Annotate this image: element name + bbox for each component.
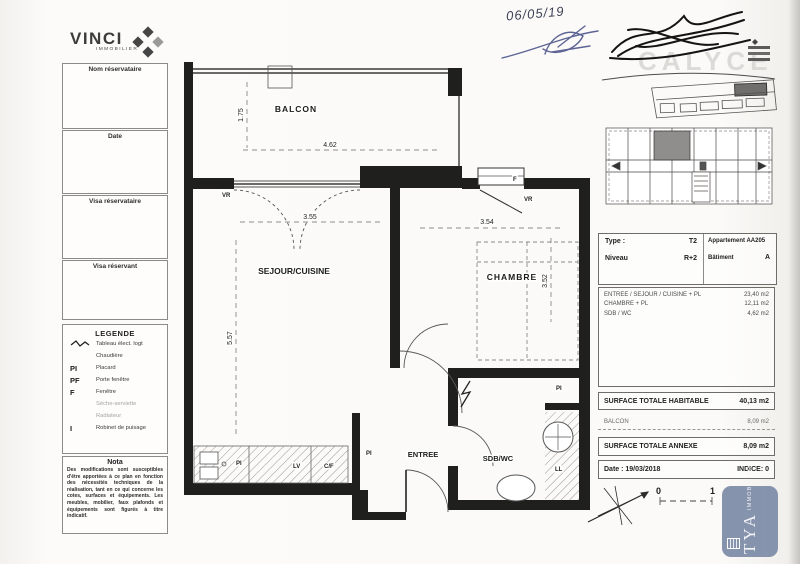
legend-item: PI Placard xyxy=(63,362,167,374)
compass-north xyxy=(588,486,648,525)
svg-text:1: 1 xyxy=(710,486,715,496)
vinci-logo: VINCI IMMOBILIER xyxy=(70,30,166,60)
legend-label: Chaudière xyxy=(96,353,123,359)
legend-title: LEGENDE xyxy=(63,329,167,338)
batiment-value: A xyxy=(765,254,770,261)
signature-black xyxy=(610,12,750,59)
room-area-row: ENTREE / SEJOUR / CUISINE + PL23,40 m2 xyxy=(604,291,769,300)
sink-bowl xyxy=(200,452,218,464)
dim-sejour-w: 3.55 xyxy=(303,214,317,221)
total-habitable-box: SURFACE TOTALE HABITABLE 40,13 m2 xyxy=(598,392,775,410)
label-lv: LV xyxy=(293,464,300,470)
nota-box: Nota Des modifications sont susceptibles… xyxy=(62,456,168,534)
field-visa-reservataire: Visa réservataire xyxy=(62,195,168,259)
room-label-sejour: SEJOUR/CUISINE xyxy=(258,266,330,276)
room-area-row: CHAMBRE + PL12,11 m2 xyxy=(604,300,769,309)
floor-key-plan xyxy=(606,128,772,204)
apartment-plan: BALCON SEJOUR/CUISINE CHAMBRE ENTREE SDB… xyxy=(184,62,590,520)
total-annexe-value: 8,09 m2 xyxy=(743,443,769,450)
nota-title: Nota xyxy=(63,459,167,466)
legend-item: I Robinet de puisage xyxy=(63,422,167,434)
field-label: Date xyxy=(63,131,167,140)
legend-label: Fenêtre xyxy=(96,389,116,395)
vinci-logo-sub: IMMOBILIER xyxy=(96,47,166,52)
label-pi-entree: PI xyxy=(366,451,372,457)
door-arcs xyxy=(400,324,493,512)
room-area-row: SDB / WC4,62 m2 xyxy=(604,310,769,319)
room-label-chambre: CHAMBRE xyxy=(487,272,537,282)
legend-abbr: I xyxy=(70,424,96,433)
label-f-window: F xyxy=(513,177,517,183)
niveau-label: Niveau xyxy=(605,255,628,262)
plan-date: Date : 19/03/2018 xyxy=(604,466,660,473)
legend-item: Sèche-serviette xyxy=(63,398,167,410)
dim-balcon-w: 4.62 xyxy=(323,142,337,149)
type-value: T2 xyxy=(689,238,697,245)
citya-name: CITYA xyxy=(740,512,760,564)
room-label-balcon: BALCON xyxy=(275,104,317,114)
field-visa-reservant: Visa réservant xyxy=(62,260,168,320)
label-vr-sejour: VR xyxy=(222,193,231,199)
dim-balcon-d: 1.75 xyxy=(238,108,245,122)
legend-item: F Fenêtre xyxy=(63,386,167,398)
citya-stamp: CITYA IMMOBILIER xyxy=(722,486,778,557)
legend-item: Chaudière xyxy=(63,350,167,362)
unit-id-box: Type : T2 Niveau R+2 Appartement AA205 B… xyxy=(598,233,777,285)
field-label: Visa réservataire xyxy=(63,196,167,205)
scanned-floor-plan-page: 06/05/19 CALYCE xyxy=(0,0,800,564)
field-label: Visa réservant xyxy=(63,261,167,270)
scale-bar: 0 1 xyxy=(656,486,715,505)
legend-box: LEGENDE Tableau élect. logt Chaudière PI… xyxy=(62,324,168,454)
signature-blue xyxy=(502,26,598,58)
room-label-sdb: SDB/WC xyxy=(483,454,514,463)
annexe-room-area: 8,09 m2 xyxy=(747,419,769,425)
site-key-sketch xyxy=(651,80,776,118)
label-pi-chambre: PI xyxy=(556,386,562,392)
highlighted-unit xyxy=(654,131,690,160)
legend-item: PF Porte fenêtre xyxy=(63,374,167,386)
bathroom-fixtures xyxy=(461,381,579,501)
legend-abbr: PF xyxy=(70,376,96,385)
room-areas-box: ENTREE / SEJOUR / CUISINE + PL23,40 m2 C… xyxy=(598,287,775,387)
total-annexe-label: SURFACE TOTALE ANNEXE xyxy=(604,443,698,450)
legend-label: Radiateur xyxy=(96,413,121,419)
legend-item: Tableau élect. logt xyxy=(63,338,167,350)
scan-edge-shadow xyxy=(788,0,800,564)
field-date: Date xyxy=(62,130,168,194)
citya-sub: IMMOBILIER xyxy=(747,466,753,510)
field-nom-reservataire: Nom réservataire xyxy=(62,63,168,129)
porte-fenetre xyxy=(234,181,360,250)
toilet xyxy=(497,475,535,501)
legend-label: Sèche-serviette xyxy=(96,401,136,407)
sink-bowl xyxy=(200,467,218,479)
total-habitable-label: SURFACE TOTALE HABITABLE xyxy=(604,398,709,405)
nota-text: Des modifications sont susceptibles d'êt… xyxy=(63,466,167,521)
svg-text:0: 0 xyxy=(656,486,661,496)
dim-chambre-w: 3.54 xyxy=(480,219,494,226)
legend-abbr: PI xyxy=(70,364,96,373)
electric-panel-icon xyxy=(70,339,96,350)
label-ll: LL xyxy=(555,467,563,473)
label-pi-kitchen: PI xyxy=(236,461,242,467)
bed-outline xyxy=(477,242,578,360)
annexe-room-row: BALCON 8,09 m2 xyxy=(598,414,775,430)
legend-item: Radiateur xyxy=(63,410,167,422)
niveau-value: R+2 xyxy=(684,255,697,262)
total-habitable-value: 40,13 m2 xyxy=(739,398,769,405)
label-vr-chambre: VR xyxy=(524,197,533,203)
citya-building-icon xyxy=(727,538,740,549)
field-label: Nom réservataire xyxy=(63,64,167,73)
label-cf: C/F xyxy=(324,464,334,470)
dim-chambre-d: 3.52 xyxy=(542,274,549,288)
room-label-entree: ENTREE xyxy=(408,450,438,459)
type-label: Type : xyxy=(605,238,625,245)
indice: INDICE: 0 xyxy=(737,466,769,473)
total-annexe-box: SURFACE TOTALE ANNEXE 8,09 m2 xyxy=(598,437,775,456)
chambre-window xyxy=(478,168,524,213)
batiment-label: Bâtiment xyxy=(708,255,734,261)
annexe-room-name: BALCON xyxy=(604,419,629,425)
apartment-id: Appartement AA205 xyxy=(704,234,776,244)
legend-label: Placard xyxy=(96,365,116,371)
legend-label: Robinet de puisage xyxy=(96,425,146,431)
legend-label: Tableau élect. logt xyxy=(96,341,143,347)
electric-panel-icon xyxy=(461,381,470,407)
dim-sejour-d: 5.57 xyxy=(227,331,234,345)
legend-label: Porte fenêtre xyxy=(96,377,130,383)
legend-abbr: F xyxy=(70,388,96,397)
